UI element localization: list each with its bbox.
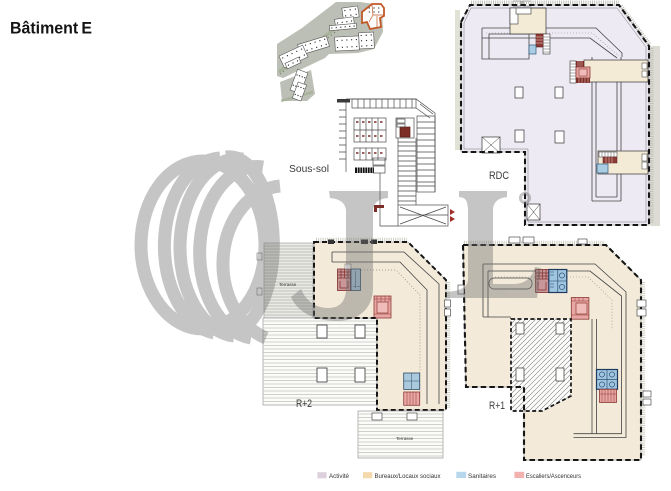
svg-text:Escaliers/Ascenceurs: Escaliers/Ascenceurs	[526, 473, 582, 480]
svg-text:Terrasse: Terrasse	[279, 282, 297, 287]
svg-text:Terrasse: Terrasse	[396, 436, 414, 441]
svg-text:RDC: RDC	[489, 170, 509, 182]
svg-text:R+2: R+2	[296, 398, 312, 410]
svg-text:Bâtiment E: Bâtiment E	[10, 19, 92, 38]
svg-text:R+1: R+1	[489, 400, 505, 412]
svg-text:Activité: Activité	[329, 473, 349, 480]
svg-text:Sanitaires: Sanitaires	[468, 473, 497, 480]
svg-text:Bureaux/Locaux sociaux: Bureaux/Locaux sociaux	[375, 473, 442, 480]
svg-text:Sous-sol: Sous-sol	[289, 163, 329, 175]
